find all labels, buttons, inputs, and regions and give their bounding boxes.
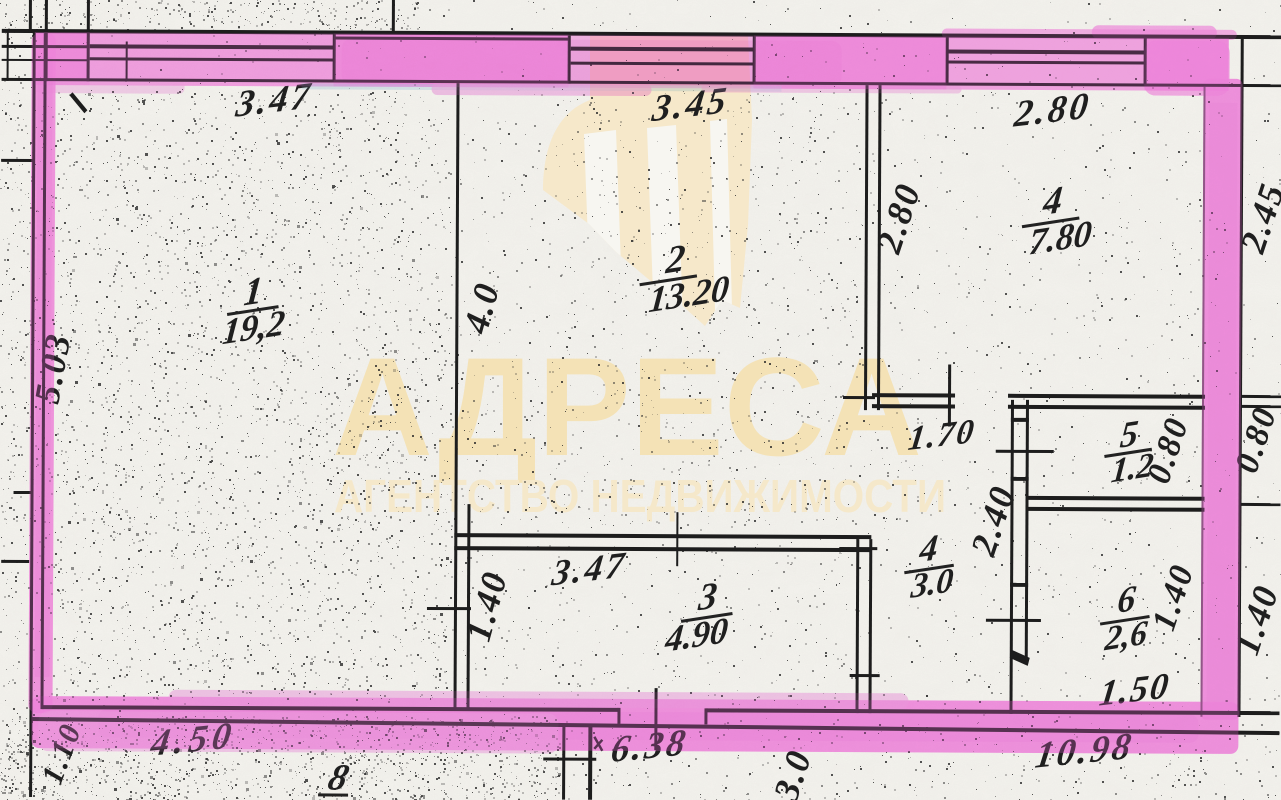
svg-text:АДРЕСА: АДРЕСА (332, 328, 922, 485)
svg-text:2,6: 2,6 (1102, 613, 1149, 658)
svg-text:3.0: 3.0 (908, 561, 955, 606)
